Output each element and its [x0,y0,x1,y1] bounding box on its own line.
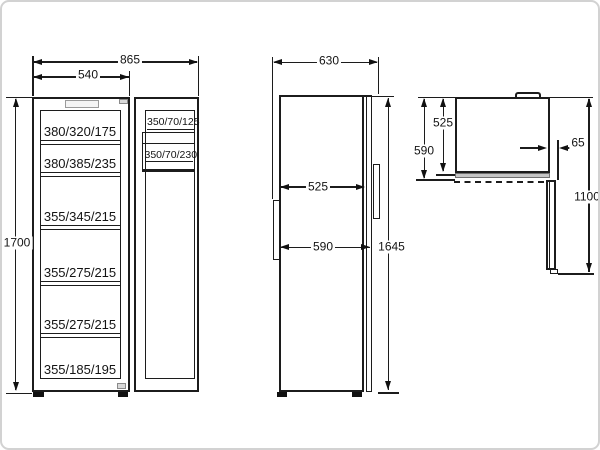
shelf-size-label: 380/320/175 [44,125,116,139]
arrowhead [361,244,370,250]
top-door-hinge-cap [550,269,558,275]
tick-line [558,273,594,274]
dimension-line [34,61,197,62]
arrowhead [586,98,592,107]
extension-line [378,57,379,94]
extension-line [129,71,130,96]
arrowhead [120,74,129,80]
dim-1100-label: 1100 [572,190,600,203]
top-body-outline [455,97,550,173]
door-hinge-bottom [117,383,126,389]
side-foot-front [352,392,362,397]
top-front-frame [455,173,550,178]
dim-590-side-label: 590 [311,241,335,254]
shelf-size-label: 380/385/235 [44,157,116,171]
shelf-size-label: 355/345/215 [44,210,116,224]
dimension-diagram: 380/320/175 380/385/235 355/345/215 355/… [0,0,600,450]
arrowhead [586,263,592,272]
cabinet-foot-left [33,392,44,397]
arrowhead [356,184,365,190]
shelf-band-1 [41,140,120,145]
shelf-band-3 [41,225,120,230]
tick-line [416,179,455,180]
tick-line [378,392,399,393]
arrowhead [280,184,289,190]
door-bin-label: 350/70/230 [145,149,193,163]
top-open-door-inner-line [549,182,550,268]
shelf-size-label: 355/185/195 [44,363,116,377]
dimension-line [424,99,425,178]
tick-line [6,393,32,394]
arrowhead [33,74,42,80]
dim-1645-label: 1645 [376,241,407,254]
rear-spacer [273,200,279,261]
dim-525-top-label: 525 [431,117,455,130]
dim-630-label: 630 [317,54,341,67]
leader-line [520,147,539,148]
arrowhead [280,244,289,250]
shelf-size-label: 355/275/215 [44,266,116,280]
front-cabinet-liner [40,110,122,379]
arrowhead [538,145,547,151]
arrowhead [369,59,378,65]
tick-line [6,97,32,98]
arrowhead [421,98,427,107]
dimension-line [588,99,589,272]
shelf-band-4 [41,281,120,286]
arrowhead [385,381,391,390]
closed-door-phantom-line [454,181,544,183]
side-door-handle [373,164,381,219]
arrowhead [440,163,446,172]
shelf-band-5 [41,333,120,338]
door-bin-label: 350/70/125 [147,116,195,130]
cabinet-foot-right [118,392,128,397]
top-open-door [546,180,556,270]
arrowhead [189,59,198,65]
dim-65-label: 65 [569,137,586,150]
shelf-band-2 [41,172,120,177]
dim-1700-label: 1700 [2,236,33,249]
arrowhead [13,382,19,391]
shelf-size-label: 355/275/215 [44,318,116,332]
control-panel [65,100,99,108]
door-hinge-top [119,99,128,105]
side-top-edge [279,95,372,97]
dim-525-side-label: 525 [306,180,330,193]
arrowhead [421,170,427,179]
door-bin-tray-line [143,143,194,144]
tick-line [436,174,455,175]
dimension-line [443,99,444,171]
dim-540-label: 540 [76,69,100,82]
extension-line [272,57,273,199]
arrowhead [33,59,42,65]
arrowhead [440,98,446,107]
arrowhead [273,59,282,65]
side-foot-back [277,392,287,397]
dim-590-top-label: 590 [412,144,436,157]
arrowhead [13,98,19,107]
dim-865-label: 865 [118,54,142,67]
arrowhead [385,98,391,107]
